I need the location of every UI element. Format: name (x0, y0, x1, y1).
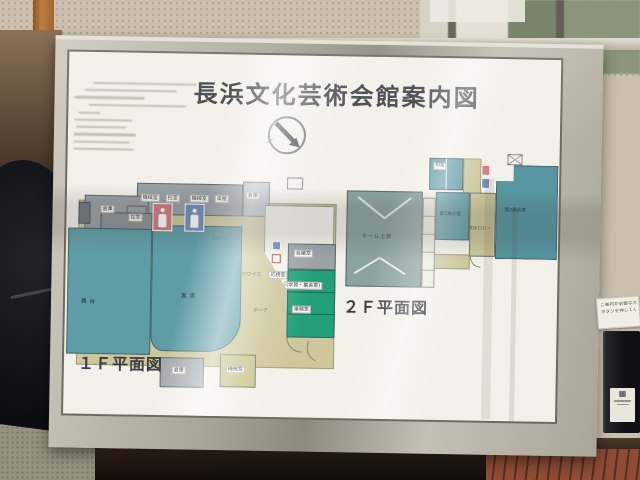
room-label-exhibit-lobby: 展示ロビー (468, 225, 491, 231)
floor2-caption: ２Ｆ平面図 (343, 293, 428, 318)
room-label: 控室 (166, 194, 180, 202)
room-label: 事務室 (292, 305, 311, 314)
room-label: 倉庫 (172, 366, 186, 374)
room-label: 倉庫 (246, 192, 260, 200)
intercom-button (614, 400, 631, 402)
room-label: (学習・集会室) (284, 281, 322, 290)
ceiling-reflection (430, 0, 525, 22)
intercom-sign: ご案内が必要な方は ボタンを押してください (596, 296, 640, 330)
poster: 長浜文化芸術会館案内図 (63, 51, 561, 422)
door-swing-icon-2f (470, 257, 481, 268)
room-label-lobby: ロビー (212, 235, 227, 242)
intercom-sign-line2: ボタンを押してください (601, 308, 637, 317)
room-label-porch: ポーチ (253, 307, 268, 314)
room-label-japanese: 和室 (433, 162, 446, 170)
room-label-foyer: ホワイエ (241, 271, 261, 278)
room-label-exhibit1: 第1展示室 (440, 211, 461, 217)
female-toilet-icon-2f (481, 165, 490, 176)
room-label: 倉庫 (101, 205, 115, 213)
room-label: 応接室 (268, 271, 287, 280)
f1-offices (286, 269, 335, 338)
direction-arrow-icon (263, 113, 312, 164)
floor1-caption: １Ｆ平面図 (78, 350, 163, 375)
photo-scene: 長浜文化芸術会館案内図 (0, 0, 640, 480)
intercom-panel: ▦ (610, 388, 635, 422)
room-label: 機械室 (226, 365, 245, 374)
legend-scribbles (74, 82, 200, 157)
poster-frame: 長浜文化芸術会館案内図 (61, 49, 563, 424)
speaker-grille-icon: ▦ (610, 390, 635, 398)
f2-corridor-top (463, 158, 482, 194)
room-label-hall-upper: ホール上部 (362, 233, 392, 241)
female-toilet-icon (152, 203, 172, 231)
room-label: 機械室 (190, 195, 209, 204)
board-title: 長浜文化芸術会館案内図 (193, 74, 480, 114)
f1-storage-left-cell (78, 202, 90, 224)
room-label: 楽屋 (215, 195, 229, 203)
room-label-exhibit2: 第2展示室 (505, 207, 526, 213)
room-label-audience: 客席 (181, 291, 198, 299)
f2-service-strip (421, 198, 436, 288)
f2-cross-box (507, 154, 522, 165)
f1-stage (66, 227, 152, 354)
room-label: 控室 (128, 214, 142, 222)
f1-auditorium (150, 225, 242, 353)
room-label: 会議室 (294, 249, 313, 258)
intercom-label-line (617, 404, 629, 406)
male-toilet-icon (184, 204, 204, 232)
elevator-icon (272, 241, 281, 250)
f1-red-box-icon (272, 254, 281, 263)
room-label-stage: 舞台 (81, 297, 98, 305)
male-toilet-icon-2f (481, 178, 490, 189)
room-label: 機械室 (141, 194, 160, 203)
f1-small-room (287, 177, 303, 189)
guide-board: 長浜文化芸術会館案内図 (48, 35, 603, 457)
